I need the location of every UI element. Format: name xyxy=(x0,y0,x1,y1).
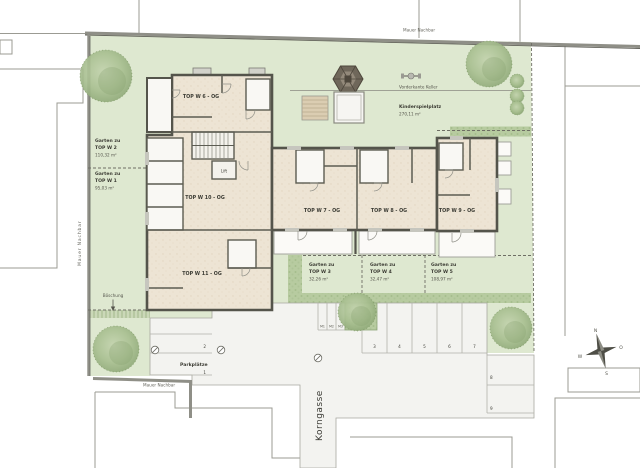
svg-text:Böschung: Böschung xyxy=(103,293,124,298)
slope-embankment xyxy=(88,310,150,318)
sandbox-icon xyxy=(334,92,364,123)
lift-label: Lift xyxy=(221,169,228,174)
tree-icon xyxy=(490,307,532,349)
circle-slash-icon xyxy=(217,346,225,354)
svg-text:Garten zu: Garten zu xyxy=(309,262,334,268)
unit-label-top-w10: TOP W 10 - OG xyxy=(185,195,225,201)
compass-east-label: O xyxy=(619,345,623,351)
unit-label-top-w7: TOP W 7 - OG xyxy=(304,208,340,214)
street-name-label: Korngasse xyxy=(315,390,325,441)
parking-space-number: 7 xyxy=(473,344,476,349)
svg-text:Garten zu: Garten zu xyxy=(370,262,395,268)
parking-title: Parkplätze xyxy=(180,362,208,368)
boundary-label-bottom: Mauer Nachbar xyxy=(143,383,175,388)
parking-space-number: 8 xyxy=(490,375,493,380)
balcony xyxy=(497,189,511,204)
terrace xyxy=(359,231,435,254)
parking-space-number: 3 xyxy=(373,344,376,349)
lift: Lift xyxy=(212,161,236,179)
bathroom xyxy=(246,79,270,110)
svg-text:Garten zu: Garten zu xyxy=(95,171,120,177)
tree-icon xyxy=(338,293,376,331)
shrub-icon xyxy=(510,101,524,115)
svg-text:Kinderspielplatz: Kinderspielplatz xyxy=(399,104,442,110)
parking-space-number: 2 xyxy=(203,344,206,349)
tree-icon xyxy=(93,326,139,372)
parking-space-number: 5 xyxy=(423,344,426,349)
hedge-strip-playground xyxy=(450,127,531,137)
svg-text:108,97 m²: 108,97 m² xyxy=(431,277,453,282)
svg-text:TOP W 3: TOP W 3 xyxy=(309,269,331,275)
parking-space-number: 9 xyxy=(490,406,493,411)
compass-west-label: W xyxy=(578,354,583,360)
svg-text:TOP W 2: TOP W 2 xyxy=(95,145,117,151)
svg-text:Garten zu: Garten zu xyxy=(431,262,456,268)
parking-space-number: 4 xyxy=(398,344,401,349)
balcony xyxy=(497,142,511,156)
svg-text:95,03 m²: 95,03 m² xyxy=(95,186,114,191)
hedge-strip-south xyxy=(288,293,531,303)
moped-space-label: M2 xyxy=(329,325,334,329)
building-annex xyxy=(147,78,172,132)
bathroom xyxy=(360,150,388,183)
tree-icon xyxy=(466,41,512,87)
svg-text:TOP W 1: TOP W 1 xyxy=(95,178,117,184)
seesaw-icon xyxy=(401,73,421,79)
boundary-label-top: Mauer Nachbar xyxy=(403,28,435,33)
balcony xyxy=(497,161,511,175)
basement-edge-label: Vorderkante Keller xyxy=(399,85,438,90)
compass-south-label: S xyxy=(605,371,608,377)
svg-text:32,47 m²: 32,47 m² xyxy=(370,277,389,282)
compass-rose-icon: N O S W xyxy=(578,328,623,377)
bathroom xyxy=(228,240,256,268)
svg-text:32,26 m²: 32,26 m² xyxy=(309,277,328,282)
circle-slash-icon xyxy=(151,346,159,354)
circle-slash-icon xyxy=(314,354,322,362)
site-plan-drawing: Lift xyxy=(0,0,640,468)
bathroom xyxy=(296,150,324,183)
site-plan-canvas: Lift xyxy=(0,0,640,468)
bench-icon xyxy=(302,96,328,120)
svg-text:TOP W 4: TOP W 4 xyxy=(370,269,392,275)
garden-label-w2: Garten zu TOP W 2 110,32 m² xyxy=(95,138,120,158)
compass-north-label: N xyxy=(594,328,597,334)
unit-label-top-w8: TOP W 8 - OG xyxy=(371,208,407,214)
svg-text:Garten zu: Garten zu xyxy=(95,138,120,144)
moped-space-label: M1 xyxy=(320,325,325,329)
tree-icon xyxy=(80,50,132,102)
garden-label-w5: Garten zu TOP W 5 108,97 m² xyxy=(431,262,456,282)
staircase xyxy=(192,132,234,159)
unit-label-top-w6: TOP W 6 - OG xyxy=(183,94,219,100)
svg-text:TOP W 5: TOP W 5 xyxy=(431,269,453,275)
bathroom xyxy=(439,143,463,170)
unit-label-top-w9: TOP W 9 - OG xyxy=(439,208,475,214)
boundary-label-left: Mauer Nachbar xyxy=(77,220,83,266)
parking-space-number: 1 xyxy=(203,370,206,375)
parking-space-number: 6 xyxy=(448,344,451,349)
shrub-icon xyxy=(510,74,524,88)
moped-space-label: M3 xyxy=(338,325,343,329)
svg-text:270,11 m²: 270,11 m² xyxy=(399,112,421,117)
terrace xyxy=(439,232,495,257)
terrace xyxy=(274,231,352,254)
svg-text:110,32 m²: 110,32 m² xyxy=(95,153,117,158)
unit-label-top-w11: TOP W 11 - OG xyxy=(182,271,222,277)
